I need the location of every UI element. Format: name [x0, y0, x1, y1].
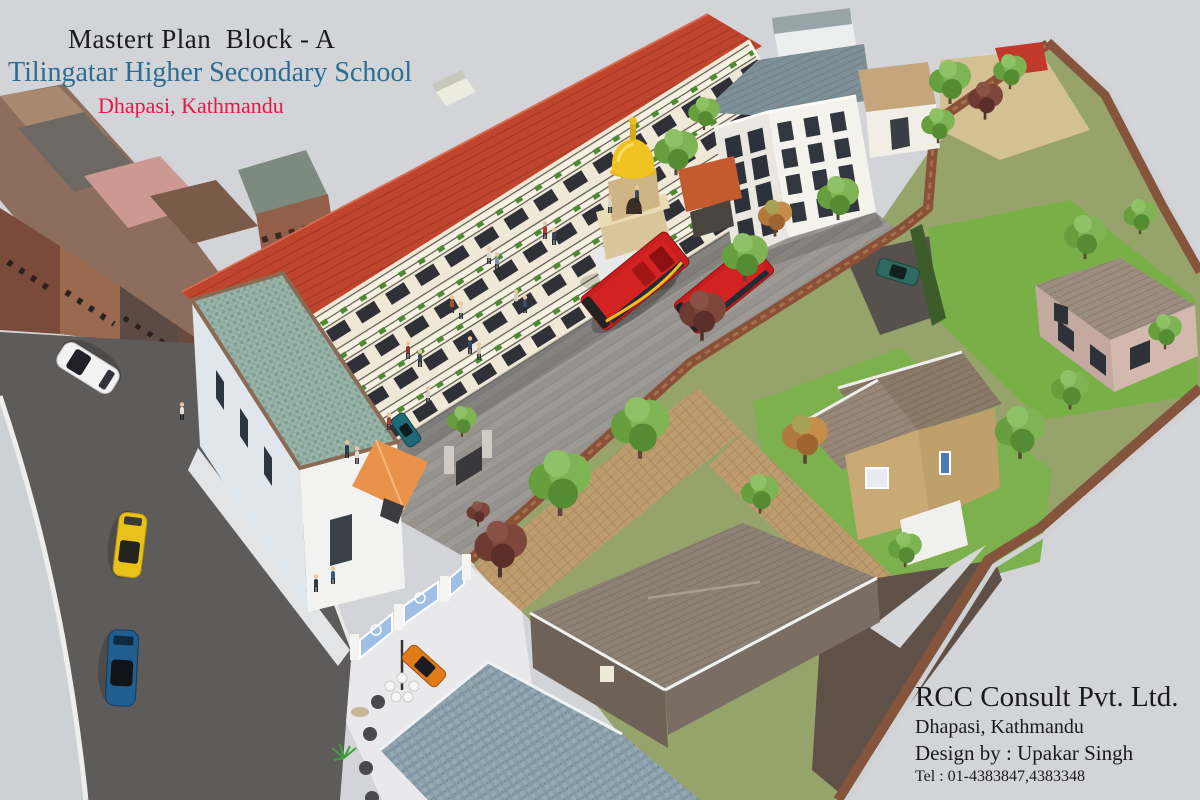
consultant-credits: RCC Consult Pvt. Ltd. Dhapasi, Kathmandu… — [915, 682, 1178, 787]
consultant-designer: Design by : Upakar Singh — [915, 741, 1178, 766]
school-name: Tilingatar Higher Secondary School — [8, 57, 412, 89]
annex-roof — [858, 62, 936, 112]
consultant-location: Dhapasi, Kathmandu — [915, 715, 1178, 739]
school-location: Dhapasi, Kathmandu — [98, 93, 284, 119]
masterplan-render: Mastert Plan Block - A Tilingatar Higher… — [0, 0, 1200, 800]
plan-title: Mastert Plan Block - A — [68, 24, 335, 55]
consultant-company: RCC Consult Pvt. Ltd. — [915, 682, 1178, 713]
consultant-phone: Tel : 01-4383847,4383348 — [915, 767, 1178, 787]
site-plan-3d-scene — [0, 0, 1200, 800]
